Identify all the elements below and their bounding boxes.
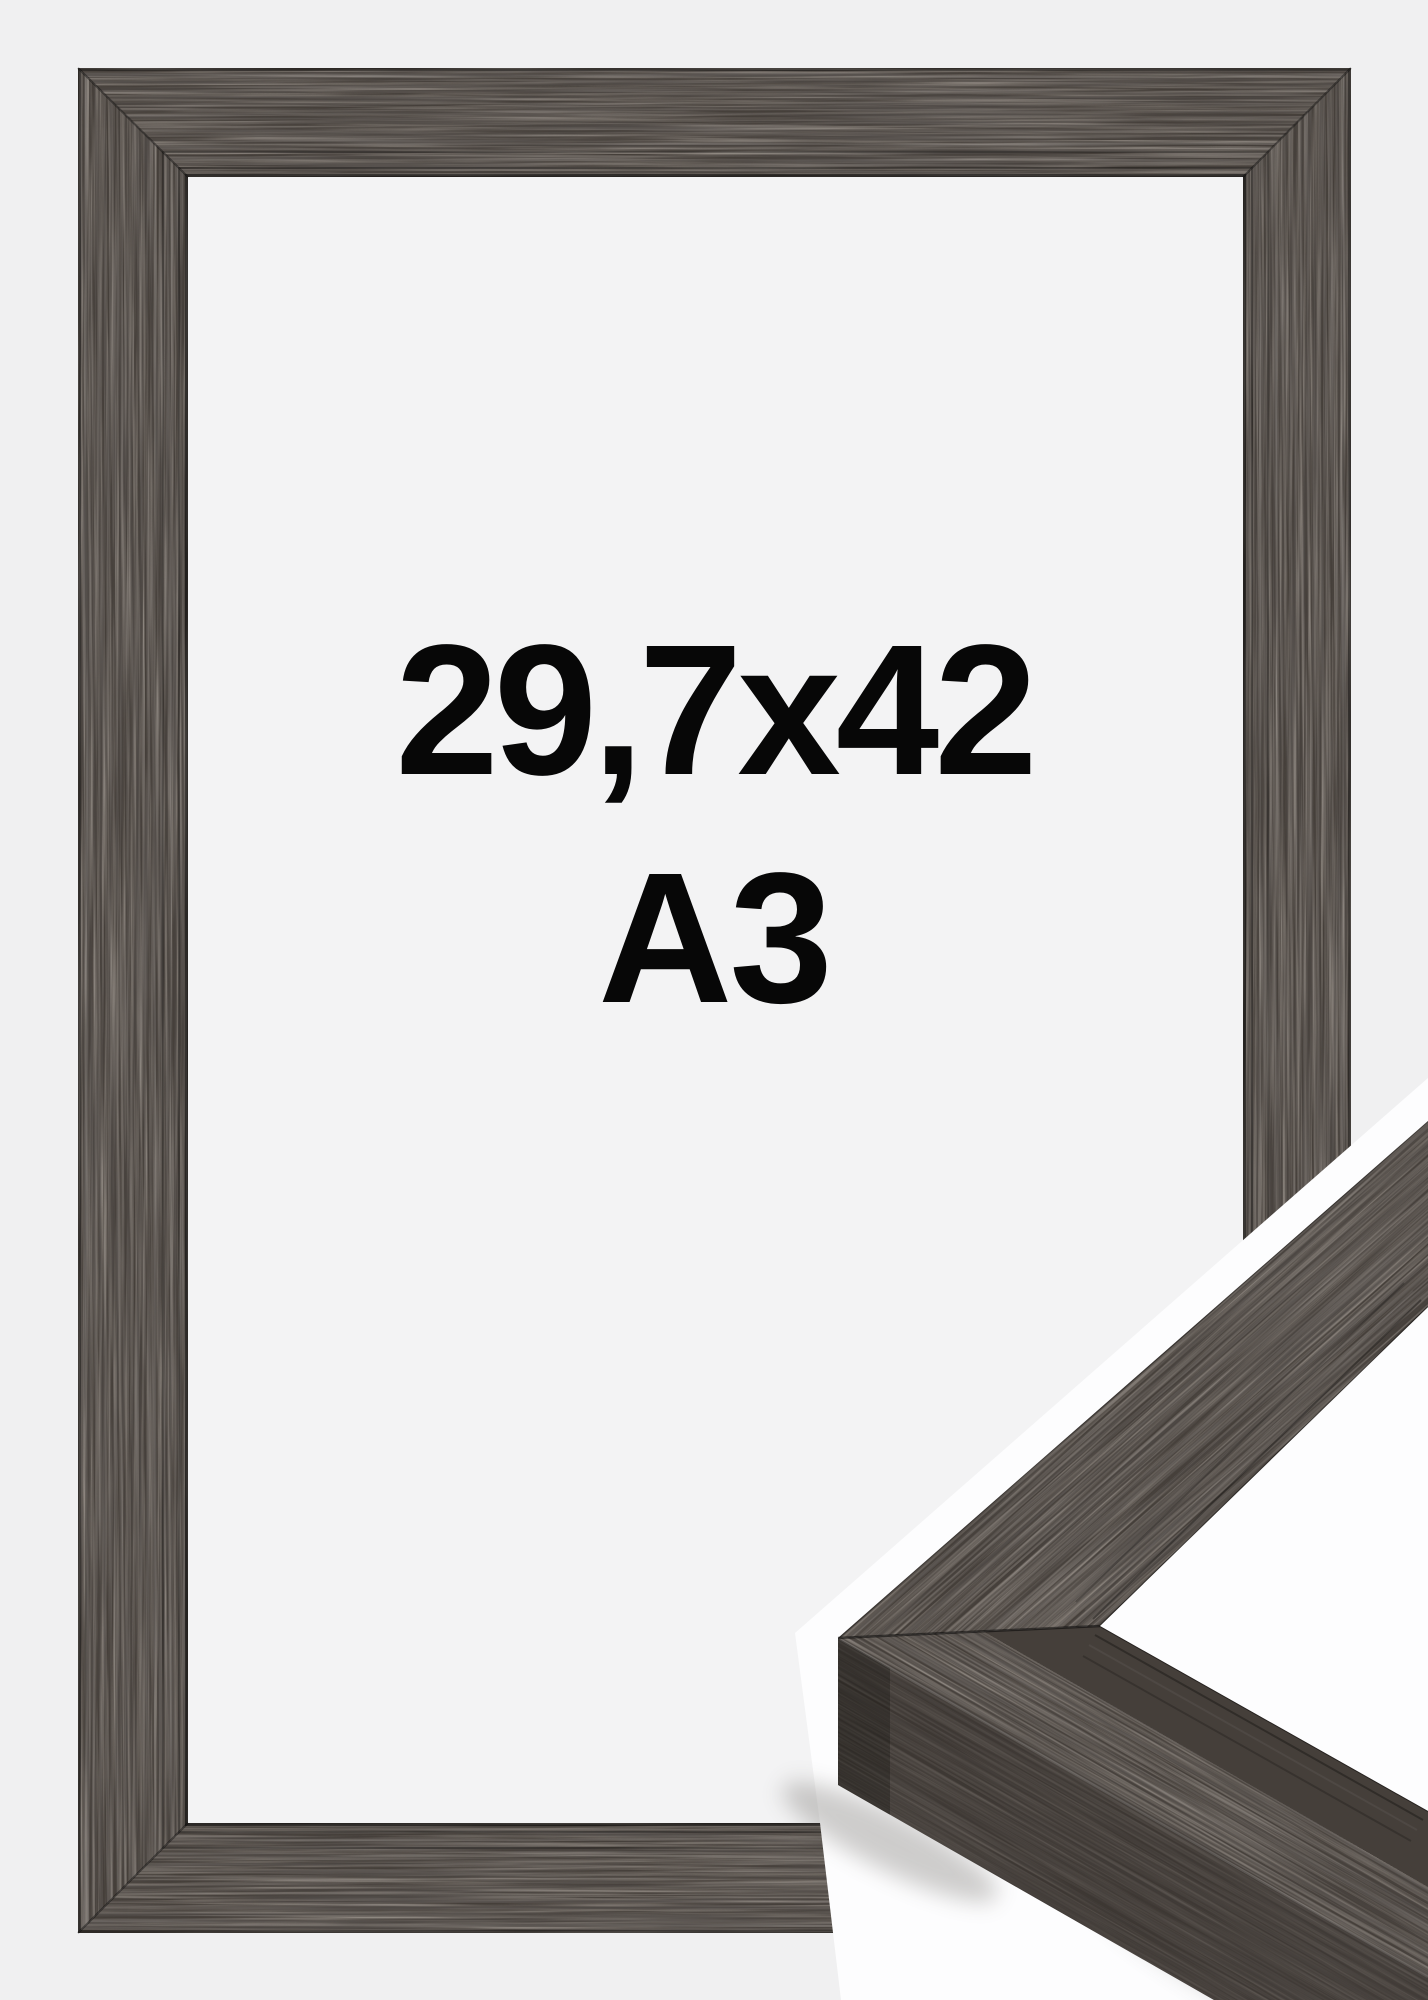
size-label: 29,7x42 (0, 618, 1428, 804)
frame-top-bar (78, 68, 1351, 178)
product-image: 29,7x42 A3 (0, 0, 1428, 2000)
size-label-group: 29,7x42 A3 (0, 618, 1428, 1032)
format-label: A3 (0, 846, 1428, 1032)
